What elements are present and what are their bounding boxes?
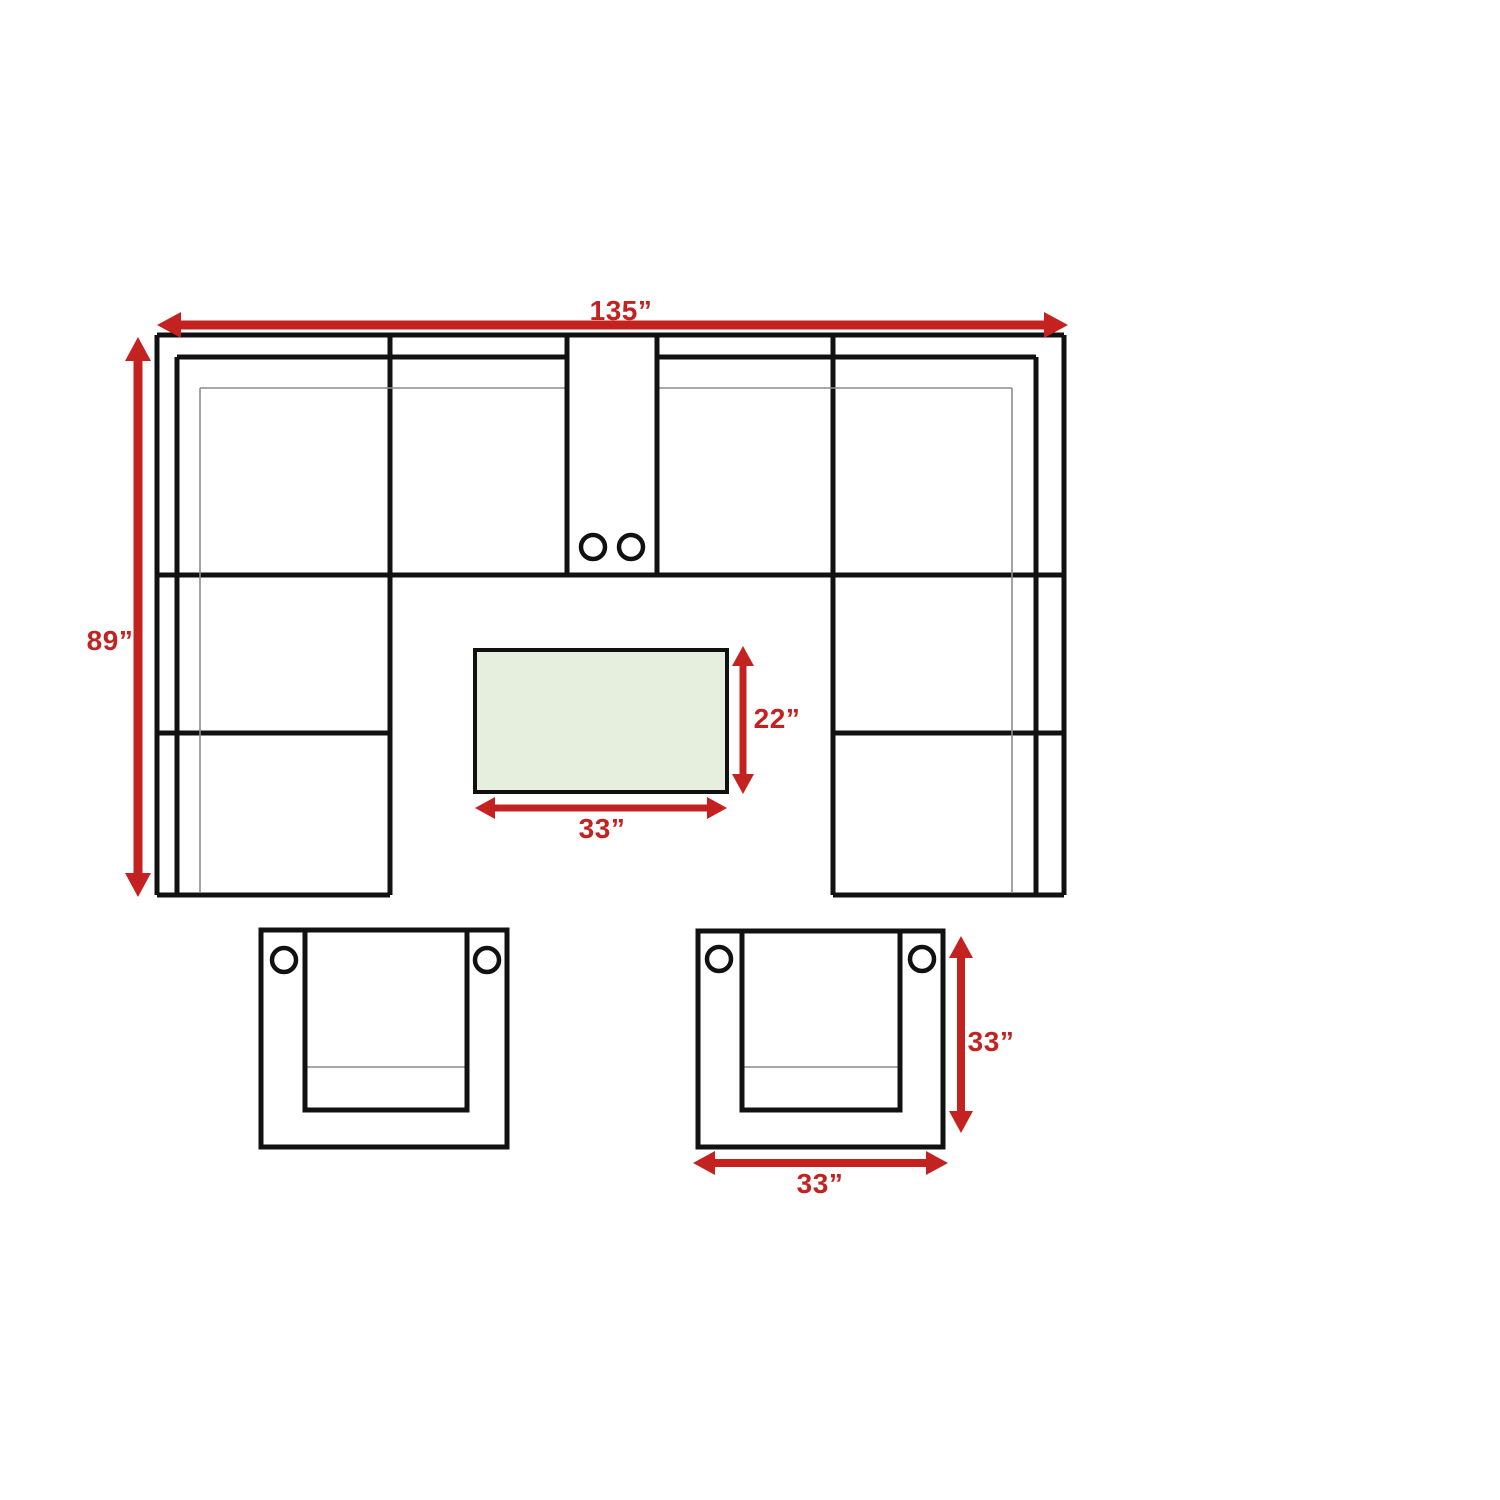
arrowhead-bottom [949,1111,973,1133]
arrow-shaft [493,805,709,812]
furniture-dimension-diagram: 135” 89” 22” 33” 33” 33” [0,0,1500,1500]
dim-label-chair-depth: 33” [968,1026,1015,1057]
cupholder-icon [619,535,643,559]
cupholder-icon [475,948,499,972]
cupholder-icon [910,947,934,971]
cupholder-icon [272,948,296,972]
dim-label-sectional-depth: 89” [87,625,134,656]
cupholder-icon [581,535,605,559]
arrowhead-top [732,646,754,666]
arrow-shaft [957,956,965,1113]
armchair-left [261,930,507,1147]
armchair-right-body [698,931,943,1147]
arrowhead-top [125,337,151,361]
coffee-table-top [475,650,727,792]
dim-label-chair-width: 33” [797,1168,844,1199]
arrow-shaft [134,359,143,875]
arrowhead-left [693,1151,715,1175]
arrowhead-right [707,797,727,819]
dim-label-table-depth: 22” [754,703,801,734]
center-console [567,335,657,575]
dim-label-table-width: 33” [579,813,626,844]
arrowhead-right [926,1151,948,1175]
dim-arrow-sectional-depth [125,337,151,897]
armchair-left-seat [305,930,467,1110]
dim-label-sectional-width: 135” [590,295,653,326]
arrow-shaft [740,664,747,776]
armchair-right-seat [742,931,900,1110]
arrowhead-bottom [125,873,151,897]
console-body [567,335,657,575]
coffee-table [475,650,727,792]
arrowhead-left [475,797,495,819]
arrowhead-bottom [732,774,754,794]
arrow-shaft [713,1159,926,1167]
arrowhead-top [949,936,973,958]
cupholder-icon [707,947,731,971]
armchair-right [698,931,943,1147]
dim-arrow-table-depth [732,646,754,794]
